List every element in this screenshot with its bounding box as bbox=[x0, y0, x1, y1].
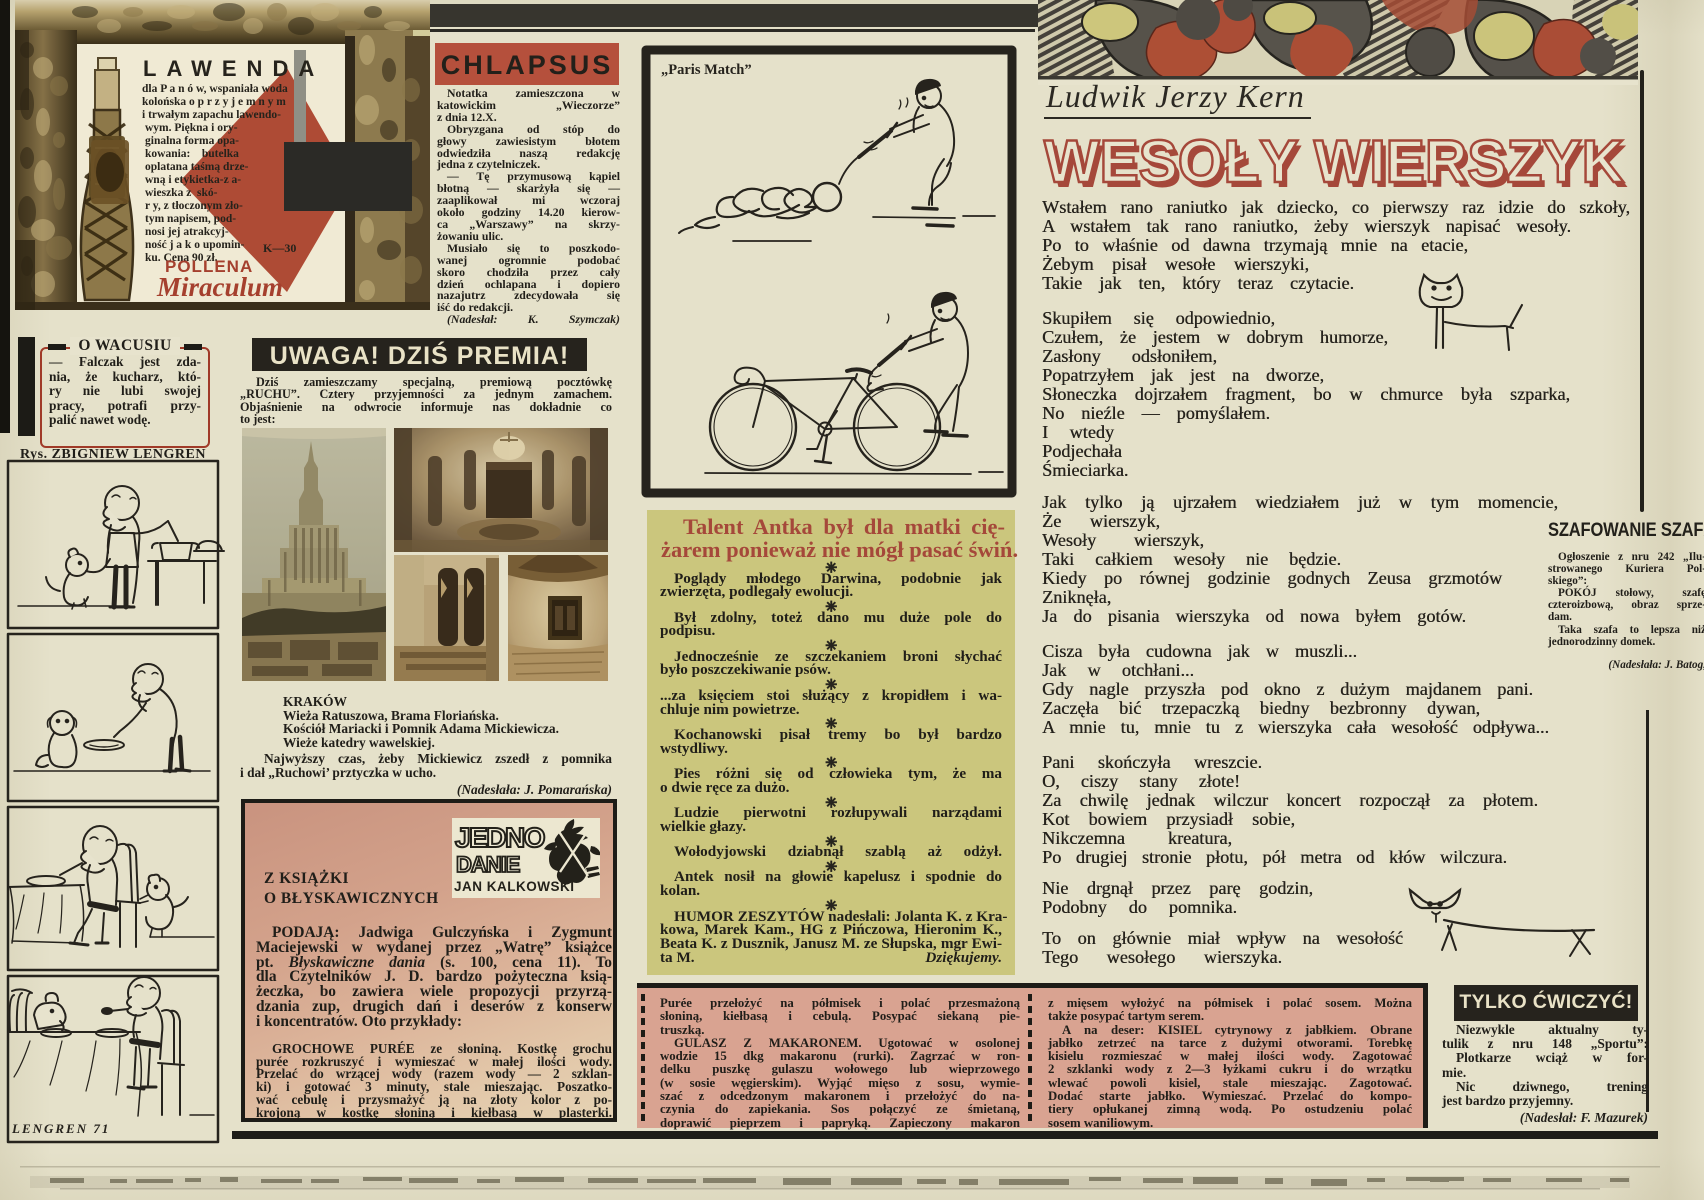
svg-text:r y, z tłoczonym zło-: r y, z tłoczonym zło- bbox=[145, 200, 243, 212]
svg-text:ność j a k o upomin-: ność j a k o upomin- bbox=[145, 239, 245, 251]
svg-text:wieszka z skó-: wieszka z skó- bbox=[145, 187, 218, 199]
svg-text:JAN KALKOWSKI: JAN KALKOWSKI bbox=[454, 879, 575, 894]
svg-text:ginalna forma opa-: ginalna forma opa- bbox=[145, 135, 239, 147]
svg-text:wną i etykietka-z a-: wną i etykietka-z a- bbox=[145, 174, 241, 186]
svg-text:wym. Piękna i ory-: wym. Piękna i ory- bbox=[145, 122, 238, 134]
svg-text:tym napisem, pod-: tym napisem, pod- bbox=[145, 213, 236, 225]
svg-text:kolońska o p r z y j e m n y m: kolońska o p r z y j e m n y m bbox=[142, 96, 286, 108]
svg-text:DANIE: DANIE bbox=[456, 852, 520, 877]
svg-text:WESOŁY WIERSZYK: WESOŁY WIERSZYK bbox=[1044, 128, 1624, 195]
svg-text:Miraculum: Miraculum bbox=[156, 272, 283, 302]
svg-text:LENGREN 71: LENGREN 71 bbox=[11, 1121, 110, 1136]
svg-text:LAWENDA: LAWENDA bbox=[143, 56, 324, 81]
svg-text:kowania: butelka: kowania: butelka bbox=[145, 148, 239, 160]
svg-text:oplatana taśmą drze-: oplatana taśmą drze- bbox=[145, 161, 249, 173]
svg-text:dla P a n ó w, wspaniała woda: dla P a n ó w, wspaniała woda bbox=[142, 83, 288, 95]
svg-text:nosi jej atrakcyj-: nosi jej atrakcyj- bbox=[145, 226, 229, 238]
svg-text:JEDNO: JEDNO bbox=[455, 822, 545, 853]
svg-text:K—30: K—30 bbox=[263, 241, 296, 255]
svg-text:„Paris Match”: „Paris Match” bbox=[661, 62, 752, 78]
svg-text:i trwałym zapachu lawendo-: i trwałym zapachu lawendo- bbox=[142, 109, 281, 121]
